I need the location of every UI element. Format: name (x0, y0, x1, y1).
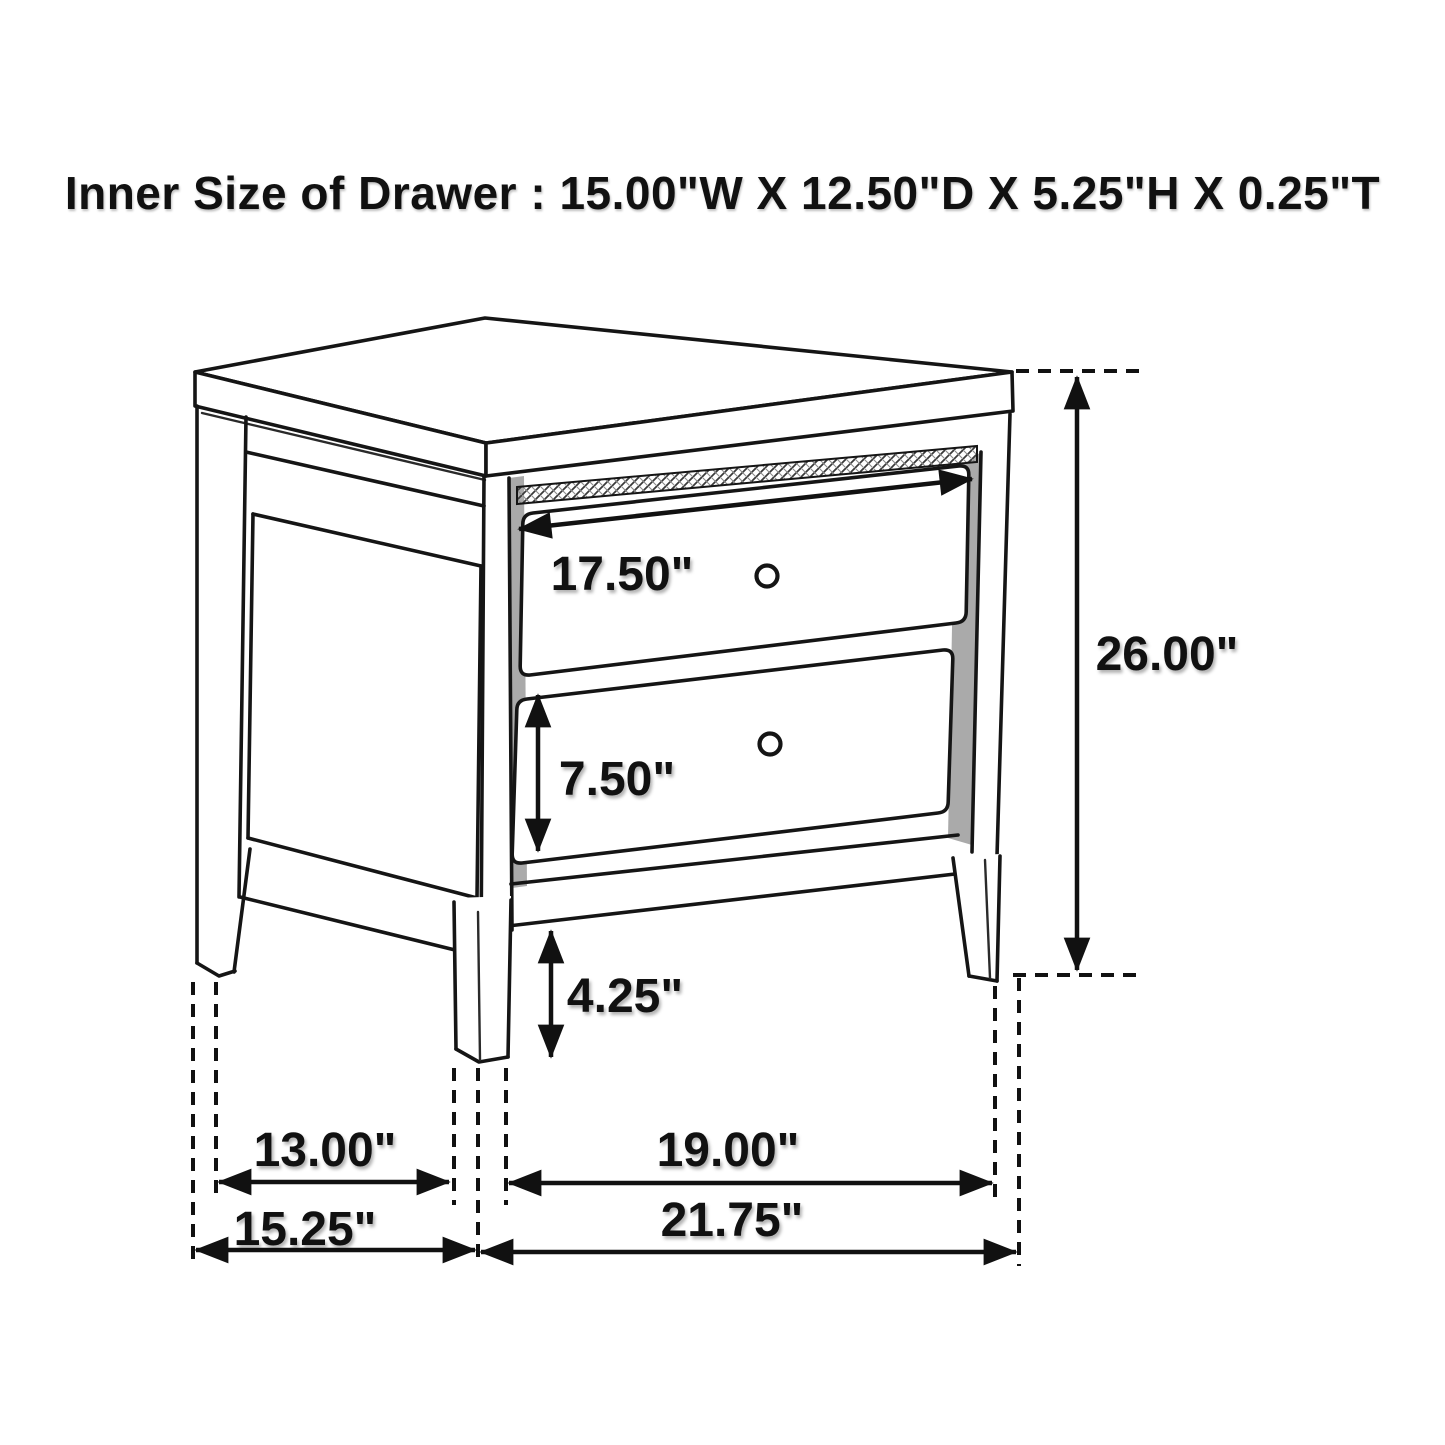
back-leg-bottom (197, 963, 235, 976)
dim-label-depth-between-legs: 13.00" (254, 1124, 397, 1177)
front-left-leg-fill (454, 896, 511, 1063)
front-face (508, 414, 1010, 930)
dim-label-overall-depth: 15.25" (234, 1203, 377, 1256)
legs (454, 854, 1001, 1063)
bottom-drawer-knob-icon (760, 734, 781, 755)
front-left-corner-edge (481, 476, 484, 950)
dim-label-floor-clearance: 4.25" (567, 970, 683, 1023)
side-panel-left (248, 514, 253, 838)
side-panel-top (253, 514, 481, 566)
dimension-labels: 17.50" 26.00" 7.50" 4.25" 13.00" 19.00" … (234, 548, 1239, 1256)
bottom-rail-bottom (508, 874, 955, 926)
dim-label-overall-height: 26.00" (1096, 628, 1239, 681)
side-bottom-rail (240, 897, 455, 950)
back-post-inner-edge (239, 417, 246, 897)
side-panel-bottom (248, 838, 477, 898)
top-drawer-knob-icon (757, 566, 778, 587)
dim-label-overall-width: 21.75" (661, 1194, 804, 1247)
nightstand-dimension-diagram: 17.50" 26.00" 7.50" 4.25" 13.00" 19.00" … (0, 0, 1445, 1445)
dim-label-lower-drawer-height: 7.50" (559, 753, 675, 806)
front-left-leg-left-edge (454, 902, 456, 1049)
dim-label-width-between-legs: 19.00" (657, 1124, 800, 1177)
dimension-diagram-page: Inner Size of Drawer : 15.00"W X 12.50"D… (0, 0, 1445, 1445)
back-leg-taper (234, 849, 250, 972)
top-panel (195, 318, 1013, 476)
right-post-outer-edge (997, 414, 1010, 856)
dim-label-drawer-front-width: 17.50" (551, 548, 694, 601)
front-right-leg-fill (951, 854, 1001, 982)
side-panel (197, 406, 485, 976)
